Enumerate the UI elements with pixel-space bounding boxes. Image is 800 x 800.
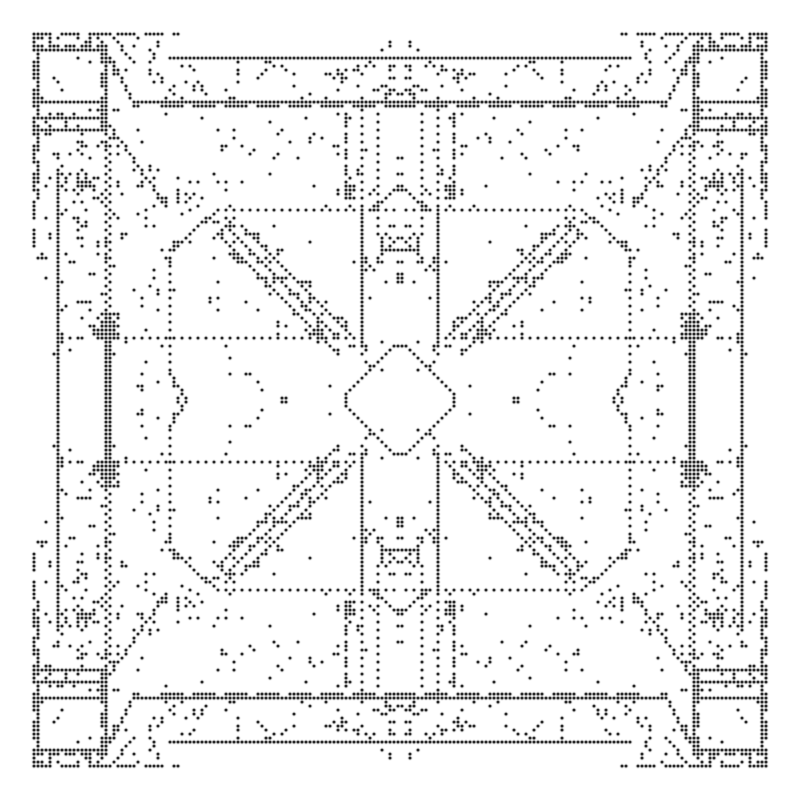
pattern-stage	[0, 0, 800, 800]
dot-matrix-pattern-canvas	[0, 0, 800, 800]
